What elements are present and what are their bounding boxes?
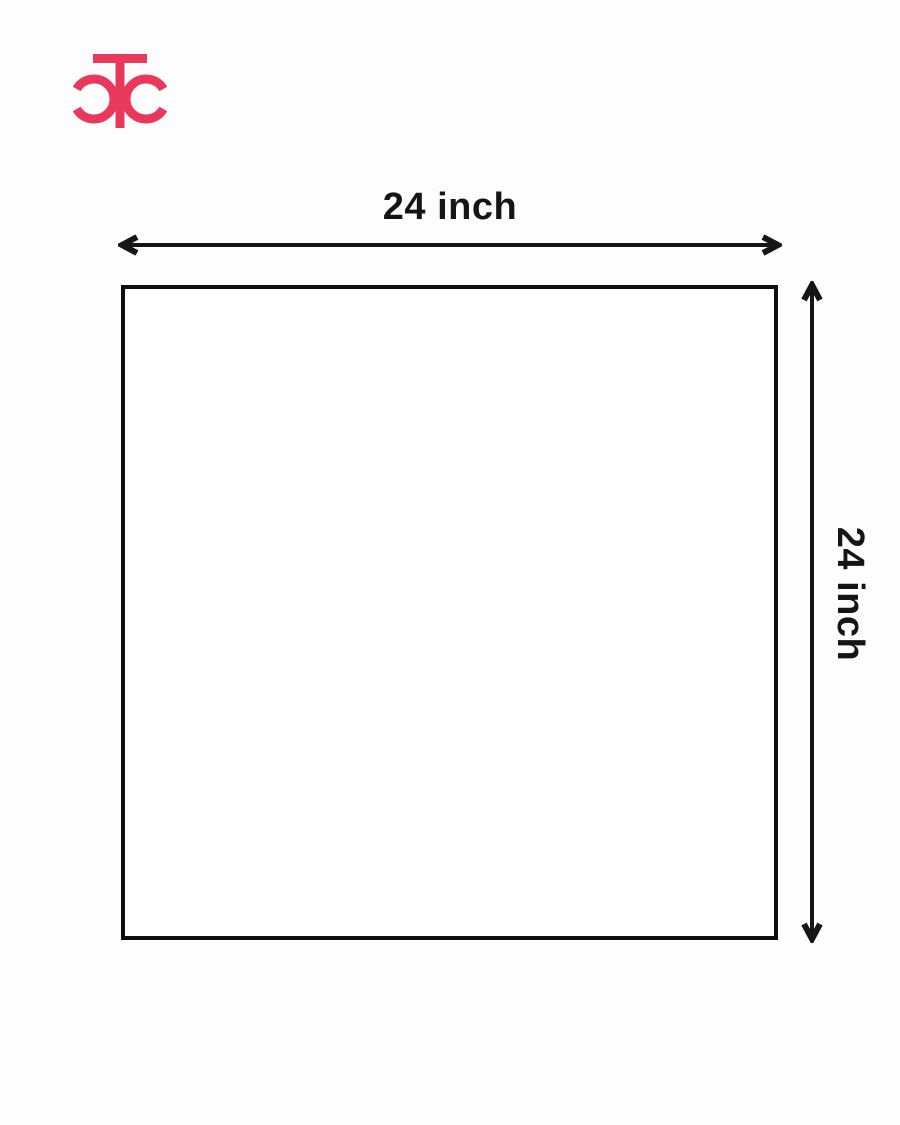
- width-dimension-arrow-icon: [118, 234, 782, 256]
- ctc-monogram-logo-icon: [62, 52, 178, 130]
- dimension-diagram: 24 inch 24 inch: [0, 0, 900, 1125]
- height-dimension-label: 24 inch: [828, 527, 871, 661]
- height-dimension-arrow-icon: [801, 281, 823, 943]
- width-dimension-label: 24 inch: [118, 186, 782, 229]
- square-outline: [121, 285, 778, 940]
